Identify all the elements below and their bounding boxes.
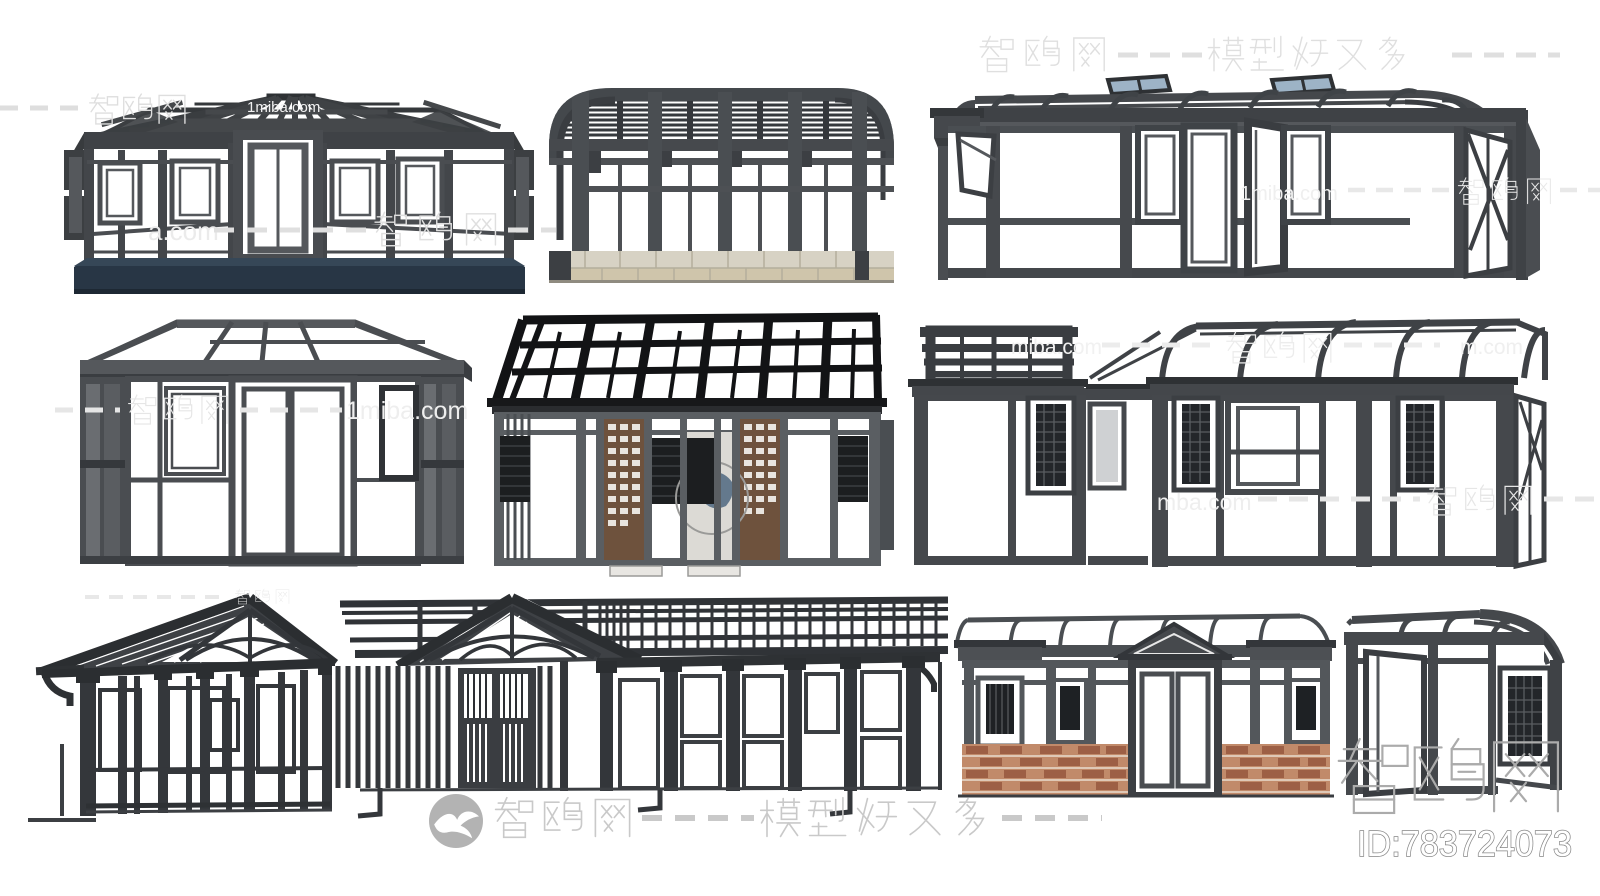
- svg-text:miba.com: miba.com: [1011, 336, 1102, 359]
- svg-text:1miba.com: 1miba.com: [346, 397, 468, 425]
- svg-text:1miba.com: 1miba.com: [1240, 183, 1338, 205]
- svg-text:mba.com: mba.com: [1157, 489, 1252, 515]
- svg-text:m.com: m.com: [1460, 336, 1523, 359]
- svg-text:a.com: a.com: [148, 216, 219, 246]
- svg-text:1miba.com: 1miba.com: [247, 99, 320, 116]
- svg-text:ID:783724073: ID:783724073: [1357, 823, 1572, 864]
